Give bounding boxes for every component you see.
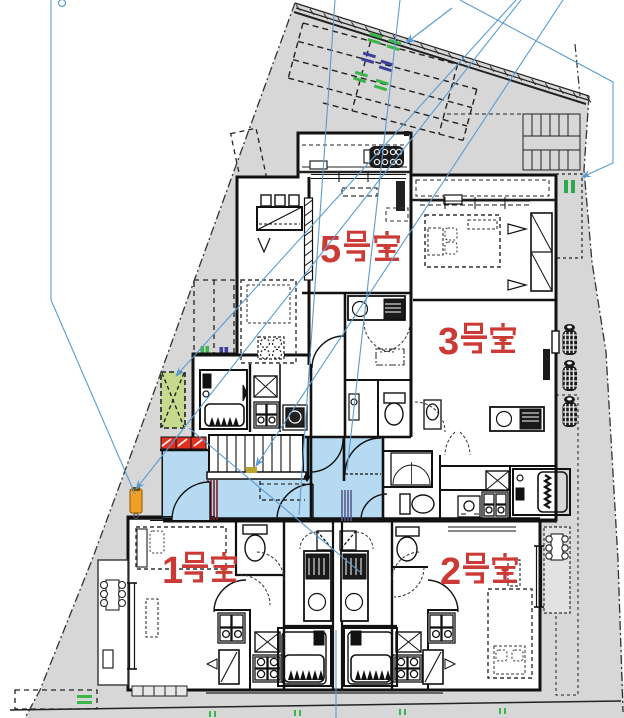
svg-text:2: 2 (440, 551, 461, 593)
svg-text:1: 1 (162, 550, 183, 592)
svg-text:3: 3 (438, 321, 459, 363)
svg-text:5: 5 (320, 229, 341, 271)
